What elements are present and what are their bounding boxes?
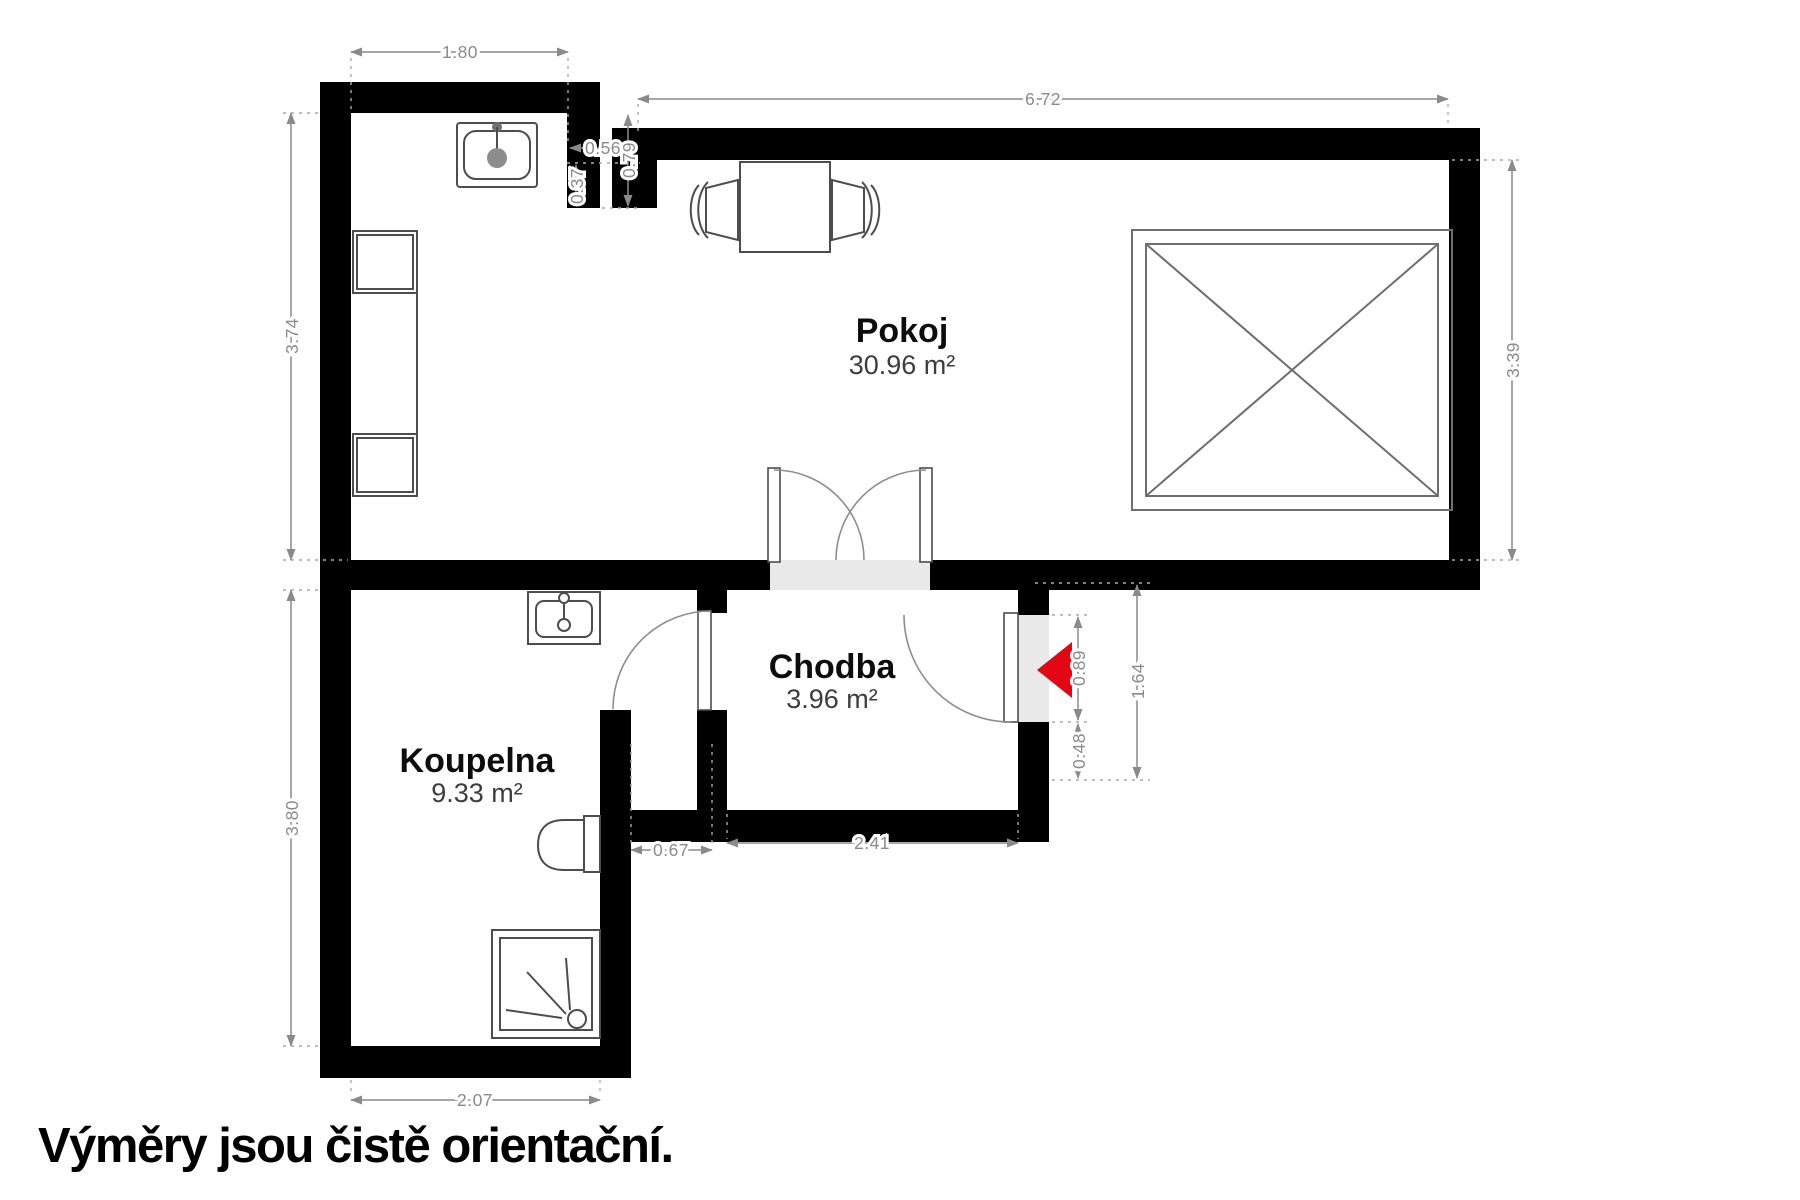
dim-label: 0.89 <box>1069 650 1089 686</box>
bed-icon <box>1132 230 1452 510</box>
dim-label: 0.79 <box>619 142 639 178</box>
dim-label: 6.72 <box>1025 89 1061 109</box>
wall-segment <box>1018 722 1049 842</box>
dim-pokoj-right-height: 3.39 <box>1503 160 1523 560</box>
dim-label: 3.39 <box>1503 342 1523 378</box>
floorplan-page: 1.80 6.72 3.74 3.39 0.56 0.79 0.37 3.80 <box>0 0 1800 1200</box>
wall-segment <box>320 82 351 1078</box>
dim-label: 3.74 <box>282 318 302 354</box>
washbasin-icon <box>528 592 600 644</box>
dim-entry-wall-stub: 0.48 <box>1069 724 1089 778</box>
dim-label: 0.67 <box>653 840 689 860</box>
toilet-icon <box>538 816 600 872</box>
room-area-pokoj: 30.96 m² <box>849 350 956 380</box>
wall-segment <box>612 128 1480 160</box>
kitchen-sink-icon <box>457 122 537 187</box>
double-door-swing <box>768 468 932 562</box>
dim-pokoj-left-height: 3.74 <box>282 113 302 560</box>
dim-label: 0.37 <box>567 168 587 204</box>
dim-kitchen-top-width: 1.80 <box>351 42 568 62</box>
dim-entry-door-height: 0.89 <box>1069 617 1089 720</box>
kitchen-unit-icons <box>353 231 417 496</box>
entrance-door-swing <box>904 613 1018 722</box>
dim-pier-depth: 0.37 <box>567 165 587 206</box>
wall-segment <box>1449 128 1480 590</box>
wall-segment <box>351 560 770 590</box>
shower-icon <box>492 930 600 1038</box>
room-label-koupelna: Koupelna <box>400 742 556 780</box>
room-label-pokoj: Pokoj <box>856 312 949 350</box>
dining-table-icon <box>740 162 830 252</box>
wall-segment <box>1018 590 1049 615</box>
dim-label: 1.64 <box>1128 663 1148 699</box>
dim-label: 0.48 <box>1069 733 1089 769</box>
floorplan-drawing: 1.80 6.72 3.74 3.39 0.56 0.79 0.37 3.80 <box>0 0 1800 1200</box>
wall-segment <box>320 1046 631 1078</box>
dim-pokoj-top-width: 6.72 <box>638 89 1448 109</box>
wall-segment <box>930 560 1480 590</box>
room-area-koupelna: 9.33 m² <box>431 778 523 808</box>
bathroom-door-swing <box>613 611 711 710</box>
dim-label: 0.56 <box>585 138 621 158</box>
double-door-threshold <box>770 560 930 590</box>
dim-label: 3.80 <box>282 800 302 836</box>
dim-label: 1.80 <box>442 42 478 62</box>
room-label-chodba: Chodba <box>769 648 897 686</box>
disclaimer-caption: Výměry jsou čistě orientační. <box>38 1118 938 1174</box>
dim-entry-total-height: 1.64 <box>1128 585 1148 778</box>
dim-label: 2.07 <box>457 1090 493 1110</box>
dim-label: 2.41 <box>854 833 890 853</box>
wall-segment <box>697 590 727 613</box>
wall-segment <box>600 710 631 1078</box>
dim-koupelna-left-height: 3.80 <box>282 590 302 1046</box>
wall-segment <box>631 810 1049 842</box>
dim-passage-width: 0.67 <box>631 840 712 860</box>
dim-koupelna-bottom-width: 2.07 <box>351 1090 600 1110</box>
room-area-chodba: 3.96 m² <box>786 684 878 714</box>
wall-segment <box>320 82 600 113</box>
